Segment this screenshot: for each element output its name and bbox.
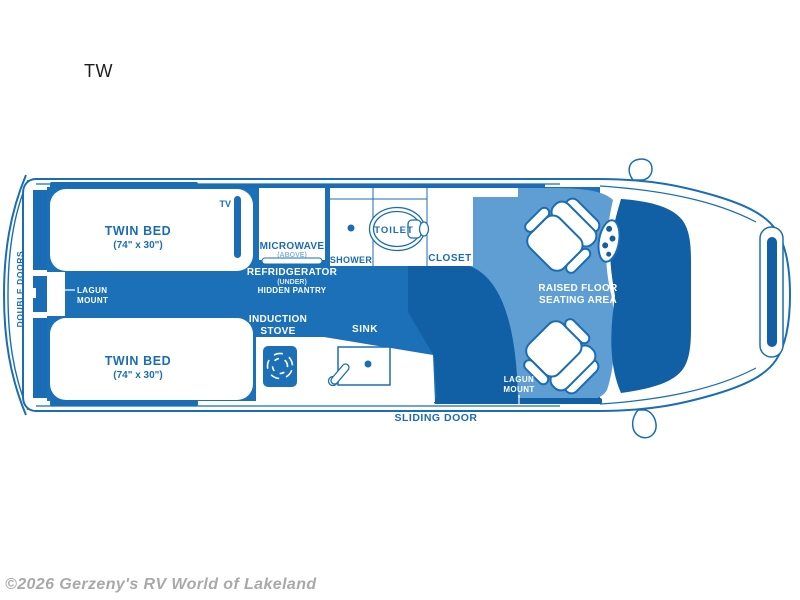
shower-label: SHOWER [330,255,373,265]
twin-bed-top-label: TWIN BED [105,224,172,238]
rear-door-latch [29,288,36,298]
twin-bed-bottom-size: (74" x 30") [113,370,163,381]
between-beds-gap [47,272,65,316]
twin-bed-bottom-label: TWIN BED [105,354,172,368]
wall-segment-bottom-thick [50,400,198,406]
side-mirror-top [629,159,652,180]
lagun-right-label-2: MOUNT [503,385,534,394]
microwave-label: MICROWAVE [260,241,325,252]
closet-label: CLOSET [428,253,472,264]
refrigerator-sub-label: (UNDER) [277,279,307,286]
raised-floor-label-1: RAISED FLOOR [538,283,618,294]
front-grille-fill [767,237,777,347]
refrigerator-tray [262,258,322,264]
raised-floor-label-2: SEATING AREA [539,295,617,306]
sink-drain-icon [365,361,372,368]
sliding-door-sill [434,398,602,404]
lagun-left-label-1: LAGUN [77,286,107,295]
shower-drain-icon [348,225,355,232]
sink-label: SINK [352,324,378,335]
refrigerator-label: REFRIDGERATOR [247,267,338,278]
twin-bed-top-size: (74" x 30") [113,240,163,251]
side-mirror-bottom [633,410,656,438]
hidden-pantry-label: HIDDEN PANTRY [258,286,327,295]
lagun-left-label-2: MOUNT [77,296,108,305]
wall-segment-top-thin [198,184,545,188]
tv-unit [234,196,241,258]
tv-label: TV [219,199,231,209]
cab-area [610,199,691,393]
toilet-label: TOILET [374,225,414,236]
wall-segment-top-thick [50,182,198,189]
induction-stove-label-1: INDUCTION [249,314,307,325]
double-doors-label: DOUBLE DOORS [15,251,25,328]
rear-door-band-top [33,190,47,270]
rear-door-band-bottom [33,318,47,398]
toilet-flush-knob [420,222,429,236]
overhead-cabinet [473,188,518,197]
induction-stove-label-2: STOVE [260,326,295,337]
lagun-right-label-1: LAGUN [504,375,534,384]
van-floorplan-diagram: DOUBLE DOORS TWIN BED (74" x 30") TV TWI… [0,0,800,600]
sliding-door-label: SLIDING DOOR [394,412,477,424]
dealer-watermark: ©2026 Gerzeny's RV World of Lakeland [5,576,317,594]
